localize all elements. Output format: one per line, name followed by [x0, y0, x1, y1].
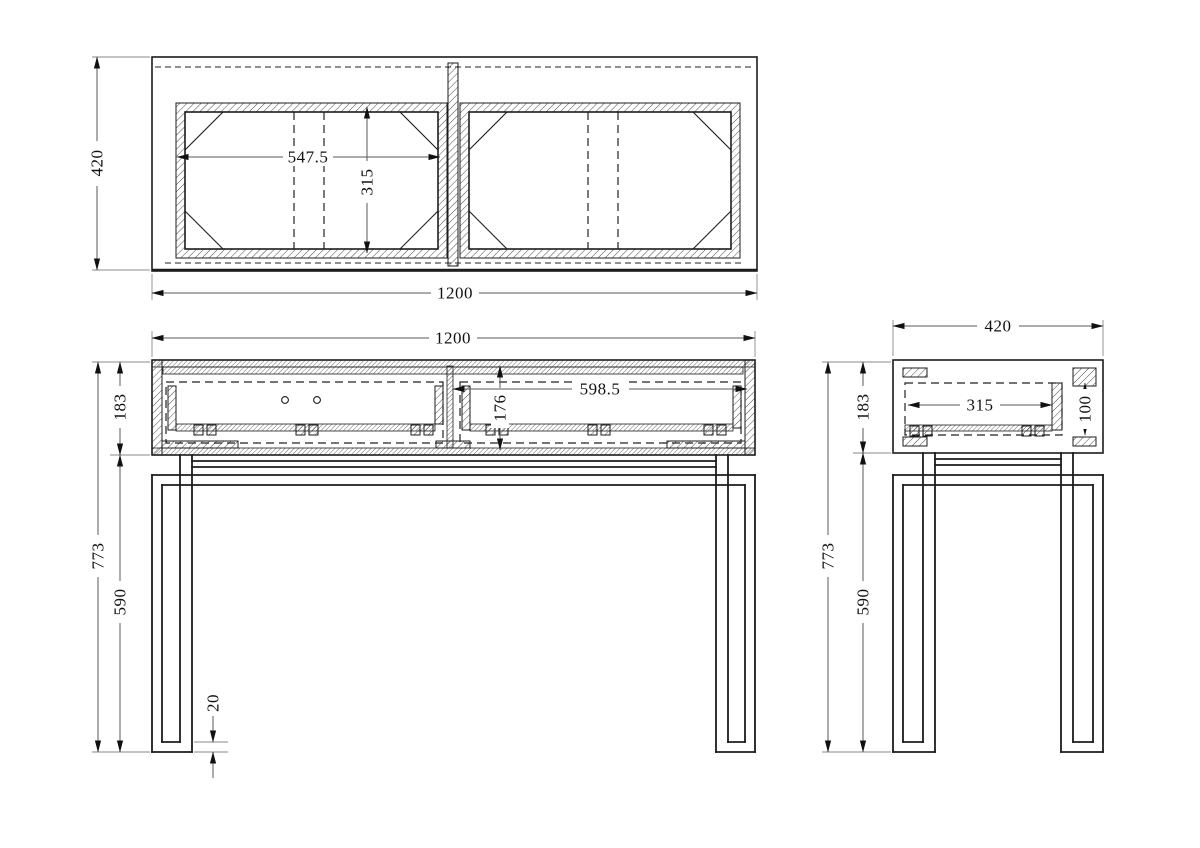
top-right-drawer-interior — [469, 112, 731, 249]
dim-front-total-height: 773 — [89, 543, 108, 570]
dim-front-drawer-opening-height: 176 — [491, 395, 510, 422]
dim-front-width: 1200 — [435, 329, 471, 348]
front-right-drawer-slide-r — [733, 386, 741, 428]
front-left-drawer-slide-l — [168, 386, 176, 430]
dim-side-drawer-depth: 315 — [967, 396, 994, 415]
side-corner-block-bl — [903, 437, 927, 446]
side-legs — [893, 453, 1103, 752]
front-drawer-gap-divider — [447, 366, 453, 448]
top-view: 547.5 315 420 1200 — [88, 57, 758, 303]
front-bottom-pad-left — [162, 441, 238, 448]
front-cabinet-right-wall — [745, 360, 755, 455]
front-legs — [152, 455, 755, 752]
dim-top-depth: 420 — [88, 150, 107, 177]
drawing-sheet: 547.5 315 420 1200 — [0, 0, 1200, 848]
side-view: 420 315 100 183 773 590 — [819, 317, 1104, 753]
dim-top-drawer-width: 547.5 — [288, 148, 329, 167]
front-left-drawer-slide-r — [435, 386, 443, 424]
dim-top-width: 1200 — [437, 284, 473, 303]
technical-drawing: 547.5 315 420 1200 — [0, 0, 1200, 848]
dim-top-drawer-depth: 315 — [358, 169, 377, 196]
front-right-drawer-slide-l — [462, 386, 470, 430]
front-view: 1200 183 773 590 176 598.5 20 — [89, 329, 756, 779]
dim-side-drawer-inner-height: 100 — [1076, 396, 1095, 423]
dim-side-depth: 420 — [985, 317, 1012, 336]
dim-side-total-height: 773 — [819, 543, 838, 570]
dim-front-cabinet-height: 183 — [111, 394, 130, 421]
top-middle-divider — [448, 63, 458, 266]
front-bottom-pad-right — [667, 441, 745, 448]
front-tabletop-edge — [152, 360, 755, 367]
dim-side-leg-height: 590 — [854, 589, 873, 616]
top-left-drawer-interior — [185, 112, 438, 249]
side-drawer-back-slide — [1052, 383, 1062, 430]
dim-front-drawer-front-width: 598.5 — [580, 380, 621, 399]
side-corner-block-tl — [903, 368, 927, 377]
dim-front-foot-thickness: 20 — [204, 694, 223, 712]
side-corner-block-br — [1073, 437, 1096, 446]
front-cabinet-bottom — [152, 448, 755, 455]
dim-front-leg-height: 590 — [111, 589, 130, 616]
dim-side-cabinet-height: 183 — [854, 394, 873, 421]
front-cabinet-left-wall — [152, 360, 162, 455]
